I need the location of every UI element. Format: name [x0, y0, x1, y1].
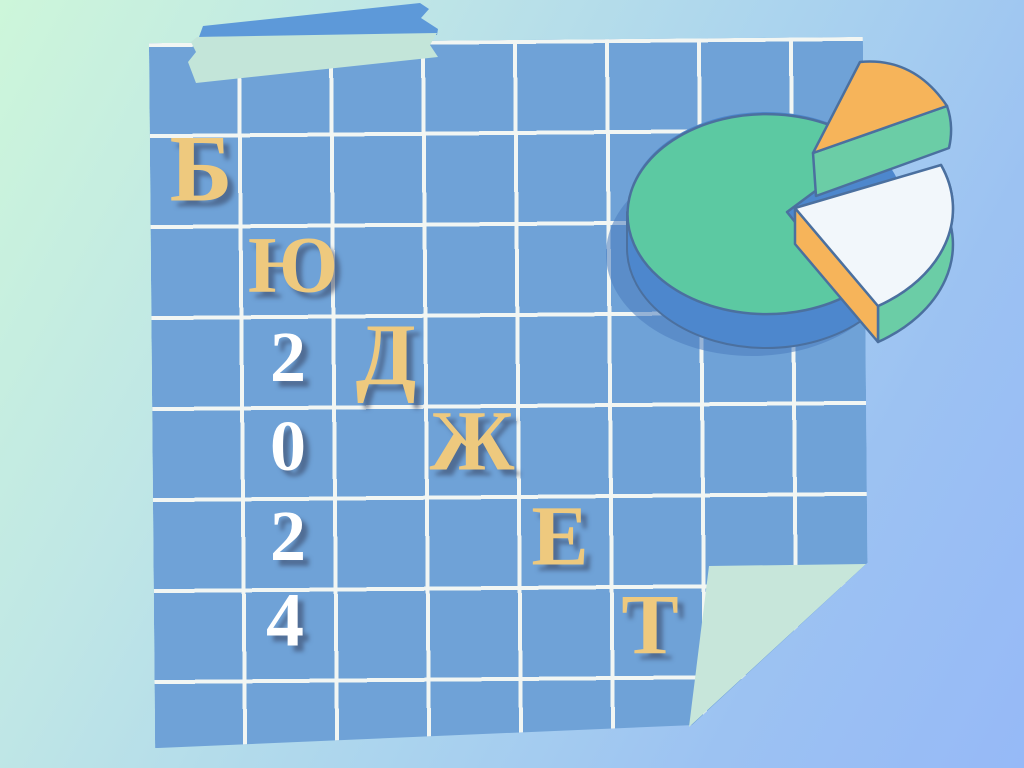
- tape-green: [188, 33, 438, 83]
- year-digit-4: 4: [266, 583, 304, 659]
- title-letter-b: Б: [170, 122, 233, 217]
- tape-blue: [199, 3, 438, 37]
- year-digit-2b: 2: [270, 500, 306, 572]
- pie-chart-illustration: [600, 28, 1024, 372]
- year-digit-0: 0: [270, 410, 306, 482]
- title-letter-zh: Ж: [429, 397, 514, 483]
- year-digit-2: 2: [270, 321, 306, 393]
- title-letter-yu: Ю: [248, 226, 338, 306]
- poster-background: Б Ю Д Ж Е Т 2 0 2 4: [0, 0, 1024, 768]
- title-letter-t: Т: [621, 581, 678, 667]
- title-letter-e: Е: [531, 492, 588, 578]
- title-letter-d: Д: [356, 312, 417, 400]
- folded-corner: [689, 564, 866, 727]
